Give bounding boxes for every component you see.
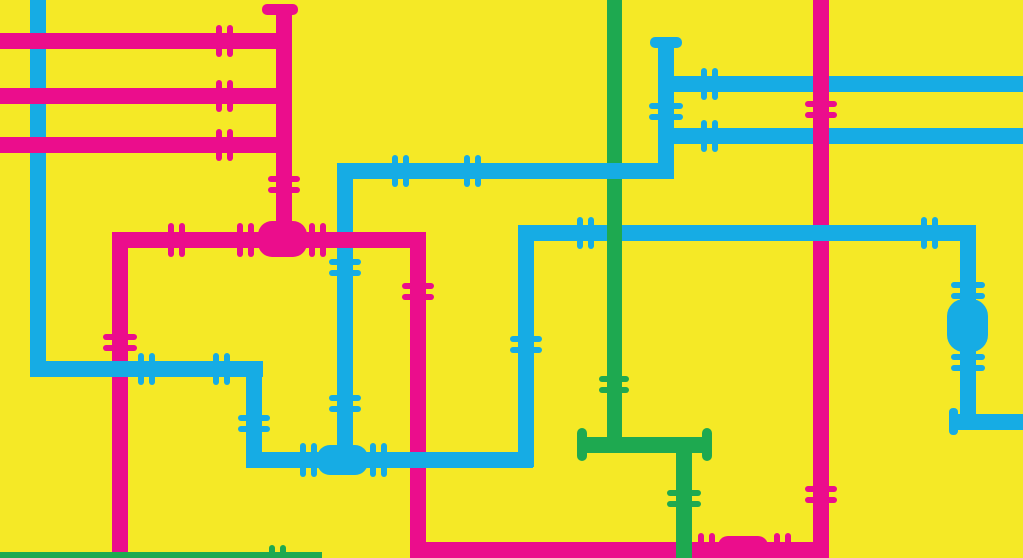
coupling-cyan-drop-v: [238, 415, 270, 432]
flange-bar: [329, 270, 361, 276]
flange-bar: [248, 223, 254, 257]
flange-bar: [280, 545, 286, 558]
flange-bar: [599, 376, 629, 382]
flange-bar: [227, 129, 233, 161]
flange-bar: [179, 223, 185, 257]
coupling-green-drop-v: [667, 490, 701, 507]
pipe-cyan-valve-h: [246, 452, 533, 468]
flange-bar: [138, 353, 144, 385]
flange-bar: [320, 223, 326, 257]
flange-bar: [329, 395, 361, 401]
flange-bar: [951, 365, 985, 371]
coupling-cyan-branch-h1: [701, 68, 718, 100]
pipe-diagram: [0, 0, 1023, 558]
coupling-cyan-tee-v-2: [329, 395, 361, 412]
pink-tee-valve: [258, 221, 307, 257]
coupling-pink-top-h2: [216, 80, 233, 112]
flange-bar: [402, 294, 434, 300]
coupling-cyan-valve-h-2: [370, 443, 387, 477]
coupling-pink-right-v-1: [805, 101, 837, 118]
flange-bar: [667, 501, 701, 507]
flange-bar: [475, 155, 481, 187]
pink-inline-valve: [718, 536, 768, 558]
coupling-pink-left-v: [103, 334, 137, 351]
flange-bar: [805, 112, 837, 118]
flange-bar: [667, 490, 701, 496]
coupling-pink-mid-h-2: [237, 223, 254, 257]
flange-bar: [510, 347, 542, 353]
coupling-cyan-mid-h-2: [921, 217, 938, 249]
flange-bar: [216, 129, 222, 161]
flange-bar: [103, 334, 137, 340]
flange-bar: [311, 443, 317, 477]
flange-bar: [309, 223, 315, 257]
flange-bar: [402, 283, 434, 289]
pipe-pink-capped-v: [276, 10, 292, 240]
coupling-cyan-long-h-2: [464, 155, 481, 187]
flange-bar: [649, 103, 683, 109]
flange-bar: [238, 426, 270, 432]
flange-bar: [510, 336, 542, 342]
pipe-cyan-tee-v: [337, 163, 353, 460]
coupling-green-main-v: [599, 376, 629, 393]
flange-bar: [464, 155, 470, 187]
pipe-pink-top-h3: [0, 137, 292, 153]
flange-bar: [268, 187, 300, 193]
flange-bar: [227, 25, 233, 57]
flange-bar: [216, 80, 222, 112]
flange-bar: [149, 353, 155, 385]
flange-bar: [168, 223, 174, 257]
green-right-end-cap: [702, 428, 712, 461]
coupling-cyan-right-v-1: [951, 282, 985, 299]
flange-bar: [712, 120, 718, 152]
pipe-pink-left-v: [112, 232, 128, 553]
flange-bar: [269, 545, 275, 558]
flange-bar: [103, 345, 137, 351]
flange-bar: [381, 443, 387, 477]
coupling-cyan-left-h-1: [138, 353, 155, 385]
coupling-green-bottom-h: [269, 545, 286, 558]
flange-bar: [805, 497, 837, 503]
flange-bar: [392, 155, 398, 187]
flange-bar: [698, 533, 704, 558]
coupling-pink-right-v-2: [805, 486, 837, 503]
coupling-cyan-right-v-2: [951, 354, 985, 371]
coupling-pink-mid-h-3: [309, 223, 326, 257]
flange-bar: [649, 114, 683, 120]
pink-end-cap: [262, 4, 298, 15]
flange-bar: [805, 486, 837, 492]
pipe-pink-mid-v: [410, 232, 426, 558]
cyan-end-cap: [650, 37, 682, 48]
coupling-cyan-long-h-1: [392, 155, 409, 187]
flange-bar: [238, 415, 270, 421]
coupling-pink-capped-v: [268, 176, 300, 193]
coupling-pink-mid-v: [402, 283, 434, 300]
pipe-cyan-long-h: [337, 163, 674, 179]
flange-bar: [403, 155, 409, 187]
flange-bar: [370, 443, 376, 477]
coupling-cyan-left-h-2: [213, 353, 230, 385]
flange-bar: [805, 101, 837, 107]
flange-bar: [712, 68, 718, 100]
flange-bar: [213, 353, 219, 385]
flange-bar: [701, 68, 707, 100]
cyan-elbow-flange: [949, 408, 958, 435]
coupling-cyan-rise-v: [510, 336, 542, 353]
pipe-pink-right-v: [813, 0, 829, 558]
flange-bar: [300, 443, 306, 477]
flange-bar: [227, 80, 233, 112]
pipe-cyan-topleft-v: [30, 0, 46, 377]
flange-bar: [329, 259, 361, 265]
coupling-pink-mid-h-1: [168, 223, 185, 257]
green-left-end-cap: [577, 428, 587, 461]
coupling-cyan-branch-h2: [701, 120, 718, 152]
coupling-pink-bottom-h-2: [774, 533, 791, 558]
flange-bar: [951, 354, 985, 360]
flange-bar: [268, 176, 300, 182]
flange-bar: [577, 217, 583, 249]
flange-bar: [329, 406, 361, 412]
coupling-cyan-mid-h-1: [577, 217, 594, 249]
flange-bar: [951, 293, 985, 299]
flange-bar: [932, 217, 938, 249]
pipe-pink-top-h2: [0, 88, 292, 104]
flange-bar: [951, 282, 985, 288]
coupling-cyan-valve-h-1: [300, 443, 317, 477]
flange-bar: [774, 533, 780, 558]
coupling-cyan-capped-v: [649, 103, 683, 120]
coupling-pink-top-h3: [216, 129, 233, 161]
coupling-cyan-tee-v-1: [329, 259, 361, 276]
flange-bar: [921, 217, 927, 249]
flange-bar: [785, 533, 791, 558]
flange-bar: [599, 387, 629, 393]
flange-bar: [709, 533, 715, 558]
pipe-pink-top-h1: [0, 33, 292, 49]
flange-bar: [237, 223, 243, 257]
cyan-inline-valve: [947, 299, 988, 352]
coupling-pink-top-h1: [216, 25, 233, 57]
coupling-pink-bottom-h-1: [698, 533, 715, 558]
flange-bar: [701, 120, 707, 152]
flange-bar: [224, 353, 230, 385]
flange-bar: [216, 25, 222, 57]
flange-bar: [588, 217, 594, 249]
pipe-cyan-right-exit-h: [958, 414, 1023, 430]
